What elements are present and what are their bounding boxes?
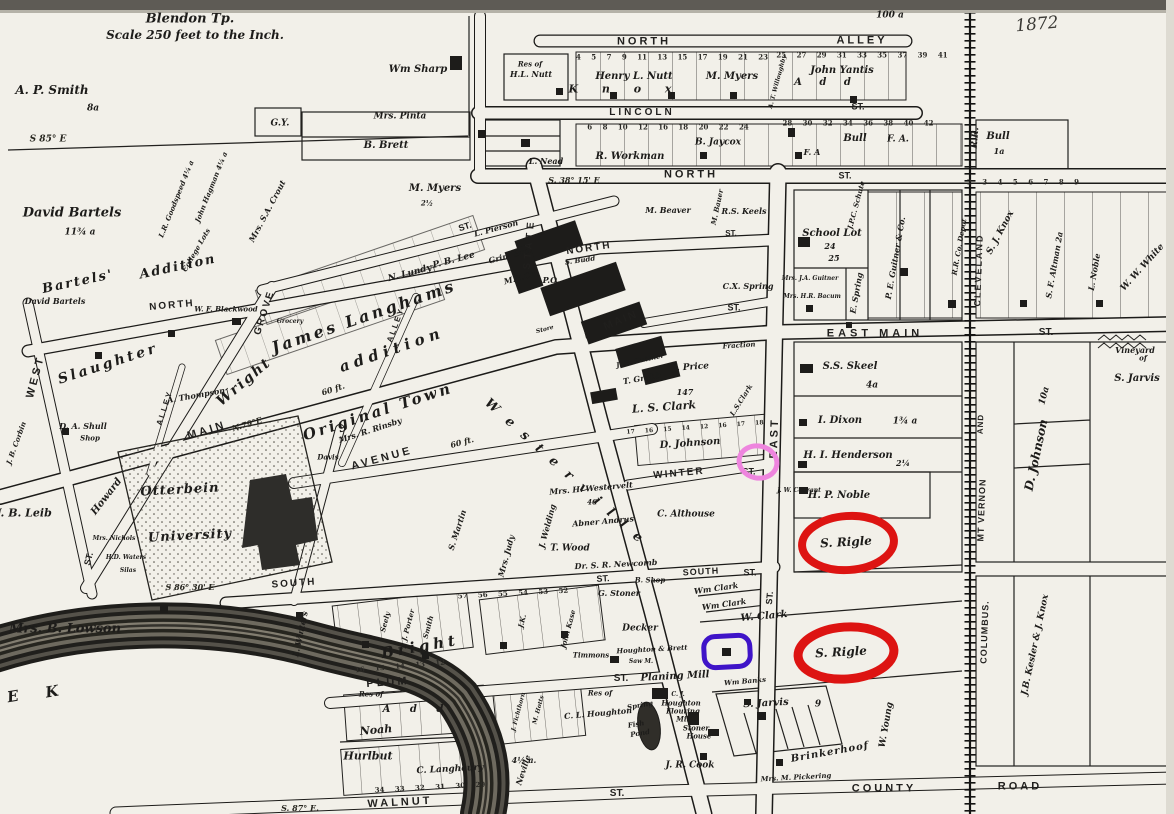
scan-edge-right [1166, 0, 1174, 814]
scan-edge-shadow [0, 10, 1174, 13]
scan-edge-top [0, 0, 1174, 10]
plat-map-linework [0, 0, 1174, 814]
map-canvas[interactable]: Blendon Tp.Scale 250 feet to the Inch.A.… [0, 0, 1174, 814]
paper-background [0, 0, 1174, 814]
